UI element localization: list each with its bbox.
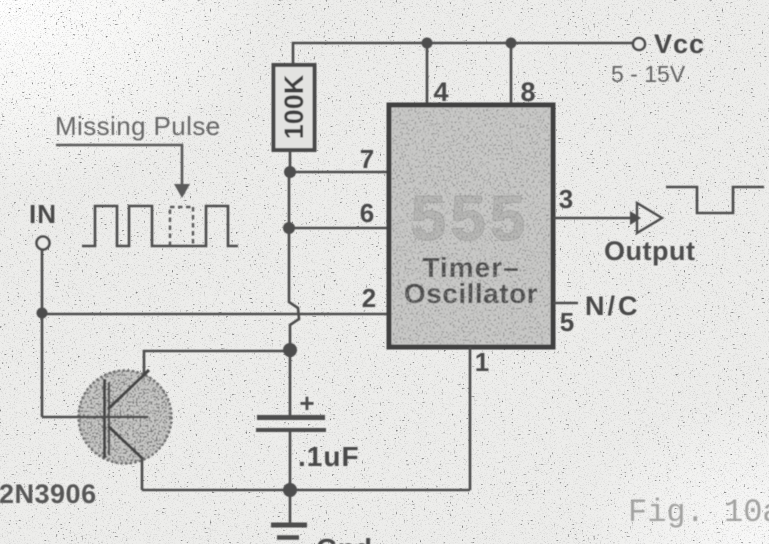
svg-text:100K: 100K (279, 74, 309, 139)
svg-text:5 - 15V: 5 - 15V (611, 61, 686, 87)
svg-text:Missing Pulse: Missing Pulse (55, 111, 221, 141)
svg-text:1: 1 (475, 347, 489, 377)
svg-text:6: 6 (360, 198, 374, 228)
svg-text:3: 3 (559, 184, 573, 214)
svg-text:+: + (299, 388, 314, 418)
svg-text:2: 2 (362, 283, 376, 313)
svg-text:7: 7 (360, 144, 374, 174)
svg-text:Gnd: Gnd (316, 533, 372, 544)
svg-text:Output: Output (604, 236, 695, 266)
svg-text:Vcc: Vcc (654, 29, 705, 59)
svg-text:IN: IN (29, 199, 57, 229)
svg-text:2N3906: 2N3906 (0, 479, 97, 509)
svg-text:5: 5 (560, 307, 574, 337)
svg-text:Fig. 10a: Fig. 10a (628, 494, 769, 531)
svg-text:N/C: N/C (585, 291, 641, 321)
svg-text:.1uF: .1uF (298, 441, 360, 472)
